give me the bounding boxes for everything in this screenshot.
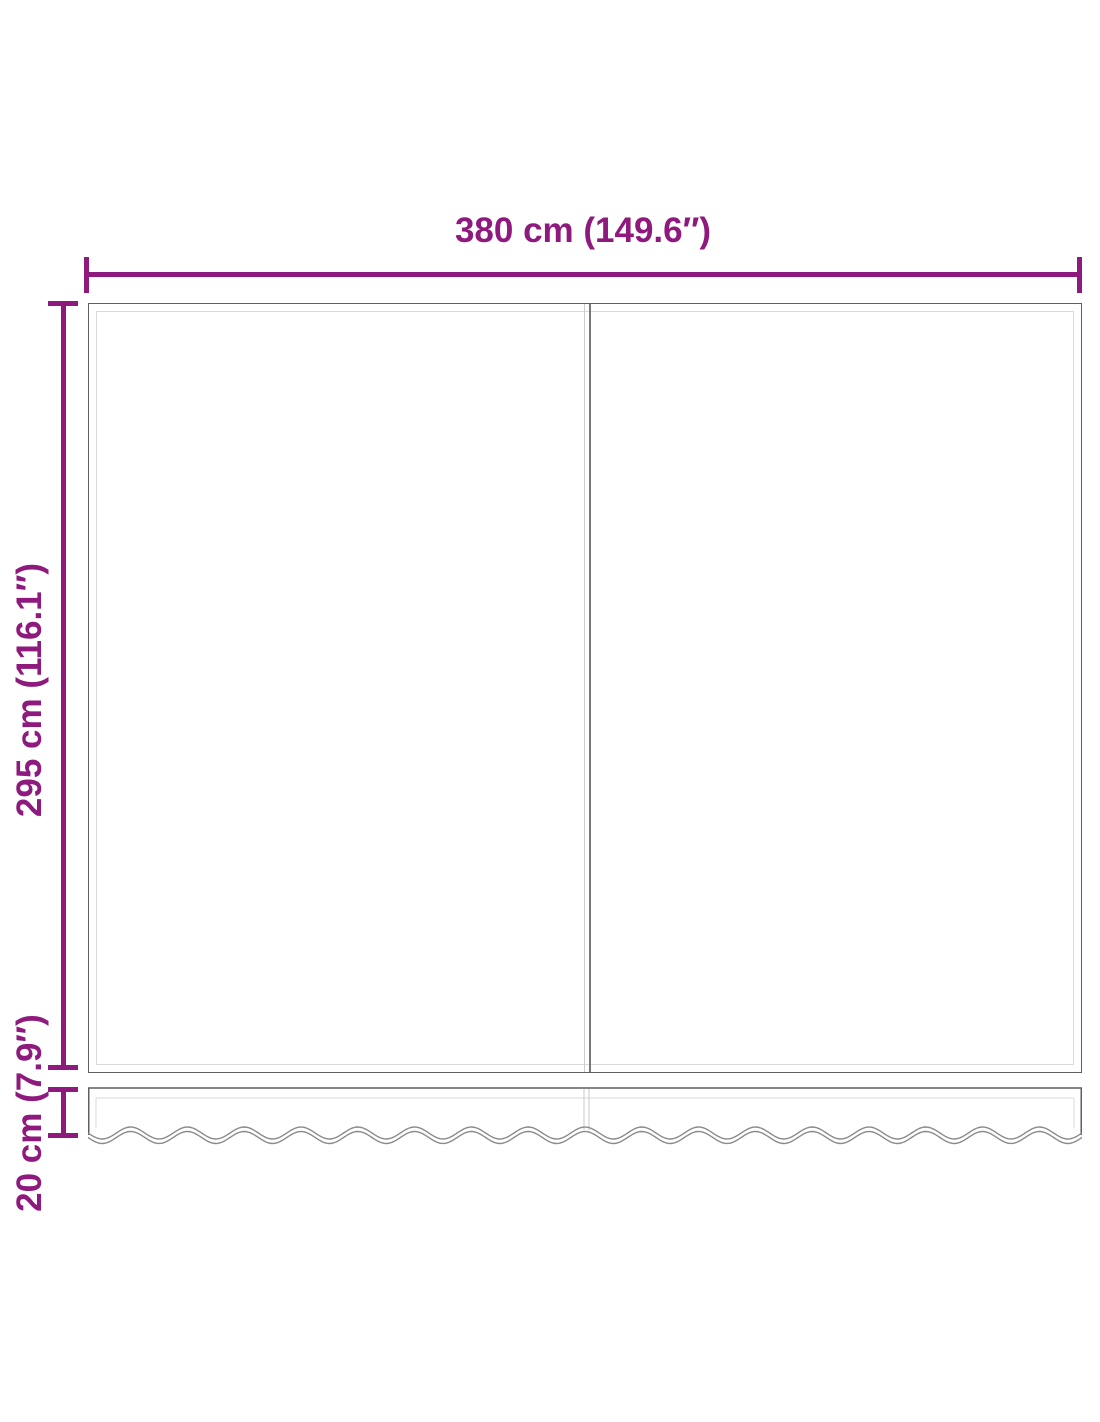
valance-dimension-top-tick	[48, 1087, 78, 1092]
height-dimension-bottom-tick	[48, 1065, 78, 1070]
width-dimension-label: 380 cm (149.6″)	[373, 211, 793, 251]
height-dimension-top-tick	[48, 301, 78, 306]
height-dimension-label: 295 cm (116.1″)	[10, 480, 50, 900]
valance-dimension-bottom-tick	[48, 1133, 78, 1138]
valance-wave-lower	[88, 1132, 1082, 1144]
valance-dimension-label: 20 cm (7.9″)	[10, 903, 50, 1323]
panel-seam	[589, 304, 591, 1072]
fabric-inner-outline	[96, 311, 1074, 1065]
width-dimension-line	[86, 272, 1080, 277]
width-dimension-left-tick	[84, 257, 89, 293]
valance-dimension-line	[61, 1089, 66, 1138]
valance	[88, 1086, 1082, 1156]
diagram-canvas: 380 cm (149.6″) 295 cm (116.1″) 20 cm (7…	[0, 0, 1100, 1422]
fabric-panel	[88, 303, 1082, 1073]
width-dimension-right-tick	[1077, 257, 1082, 293]
height-dimension-line	[61, 303, 66, 1070]
panel-seam-light-line	[584, 304, 585, 1072]
